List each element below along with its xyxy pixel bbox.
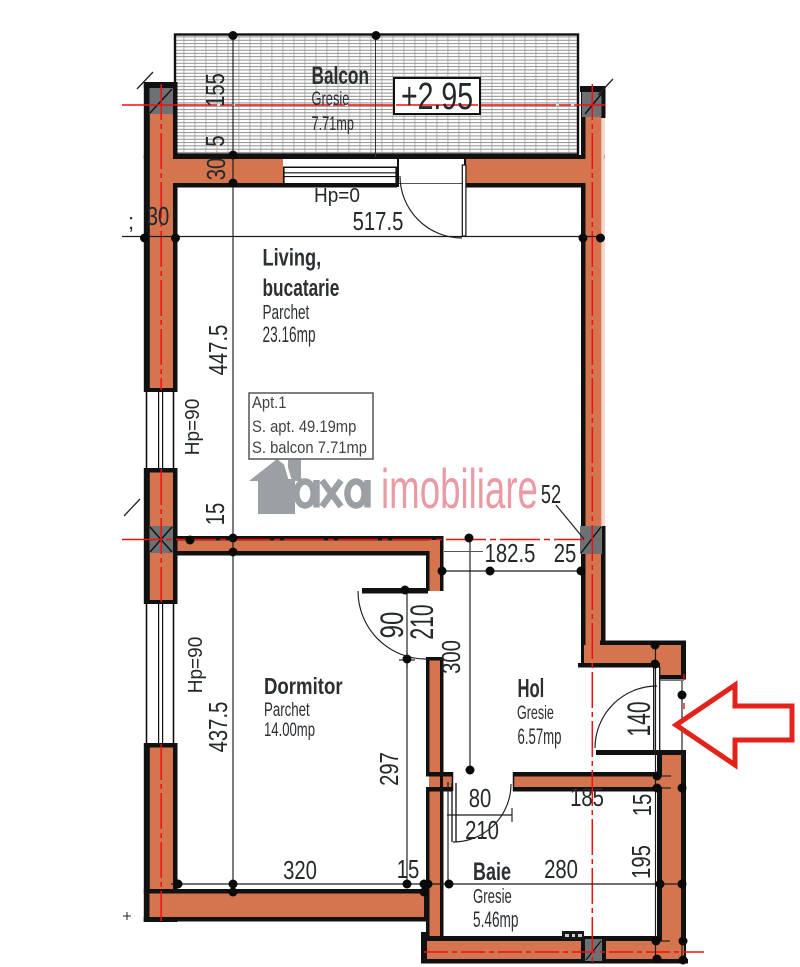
svg-text:7.71mp: 7.71mp — [312, 114, 354, 135]
svg-text:Hp=0: Hp=0 — [314, 185, 360, 208]
svg-text:14.00mp: 14.00mp — [264, 720, 315, 741]
svg-text:195: 195 — [627, 845, 656, 879]
svg-text:30: 30 — [147, 202, 170, 231]
svg-text:Apt.1: Apt.1 — [252, 394, 287, 412]
svg-text:210: 210 — [403, 604, 440, 639]
svg-text:Hol: Hol — [518, 673, 545, 703]
svg-text:Parchet: Parchet — [263, 301, 310, 323]
svg-text:imobiliare: imobiliare — [381, 458, 538, 521]
svg-text:Hp=90: Hp=90 — [182, 399, 205, 456]
svg-text:52: 52 — [541, 480, 561, 509]
svg-text:23.16mp: 23.16mp — [263, 322, 316, 347]
svg-text:S. apt. 49.19mp: S. apt. 49.19mp — [252, 418, 356, 436]
svg-text:5: 5 — [201, 135, 230, 146]
svg-text:320: 320 — [283, 856, 317, 885]
svg-text:Parchet: Parchet — [264, 698, 310, 720]
svg-text:Dormitor: Dormitor — [264, 674, 343, 699]
svg-text:Gresie: Gresie — [312, 87, 350, 109]
svg-text:297: 297 — [375, 752, 404, 786]
svg-text:Gresie: Gresie — [517, 702, 554, 723]
svg-text:5.46mp: 5.46mp — [473, 907, 518, 932]
svg-text:155: 155 — [201, 73, 230, 107]
svg-text:15: 15 — [201, 503, 230, 526]
svg-text:+2.95: +2.95 — [401, 76, 473, 118]
svg-text:437.5: 437.5 — [204, 702, 233, 753]
svg-text:30: 30 — [202, 158, 231, 181]
svg-text:S. balcon 7.71mp: S. balcon 7.71mp — [252, 439, 367, 457]
svg-text:15: 15 — [397, 855, 420, 884]
svg-text:185: 185 — [570, 783, 604, 812]
svg-text:80: 80 — [469, 784, 492, 813]
svg-text:517.5: 517.5 — [353, 207, 404, 236]
svg-text:Baie: Baie — [473, 857, 511, 886]
svg-text:Living,: Living, — [263, 244, 322, 271]
svg-text:447.5: 447.5 — [204, 325, 233, 376]
svg-text:25: 25 — [554, 539, 577, 568]
svg-text:140: 140 — [620, 701, 657, 736]
svg-text:Hp=90: Hp=90 — [185, 637, 208, 694]
svg-text:182.5: 182.5 — [485, 539, 536, 568]
svg-text:6.57mp: 6.57mp — [518, 725, 562, 749]
svg-text:bucatarie: bucatarie — [263, 275, 340, 301]
svg-text:Balcon: Balcon — [311, 62, 368, 90]
svg-text:15: 15 — [628, 794, 657, 817]
svg-text:Gresie: Gresie — [473, 885, 512, 907]
svg-text:;: ; — [128, 209, 134, 234]
svg-text:210: 210 — [465, 816, 499, 845]
svg-text:300: 300 — [437, 640, 466, 674]
svg-text:280: 280 — [544, 855, 578, 884]
